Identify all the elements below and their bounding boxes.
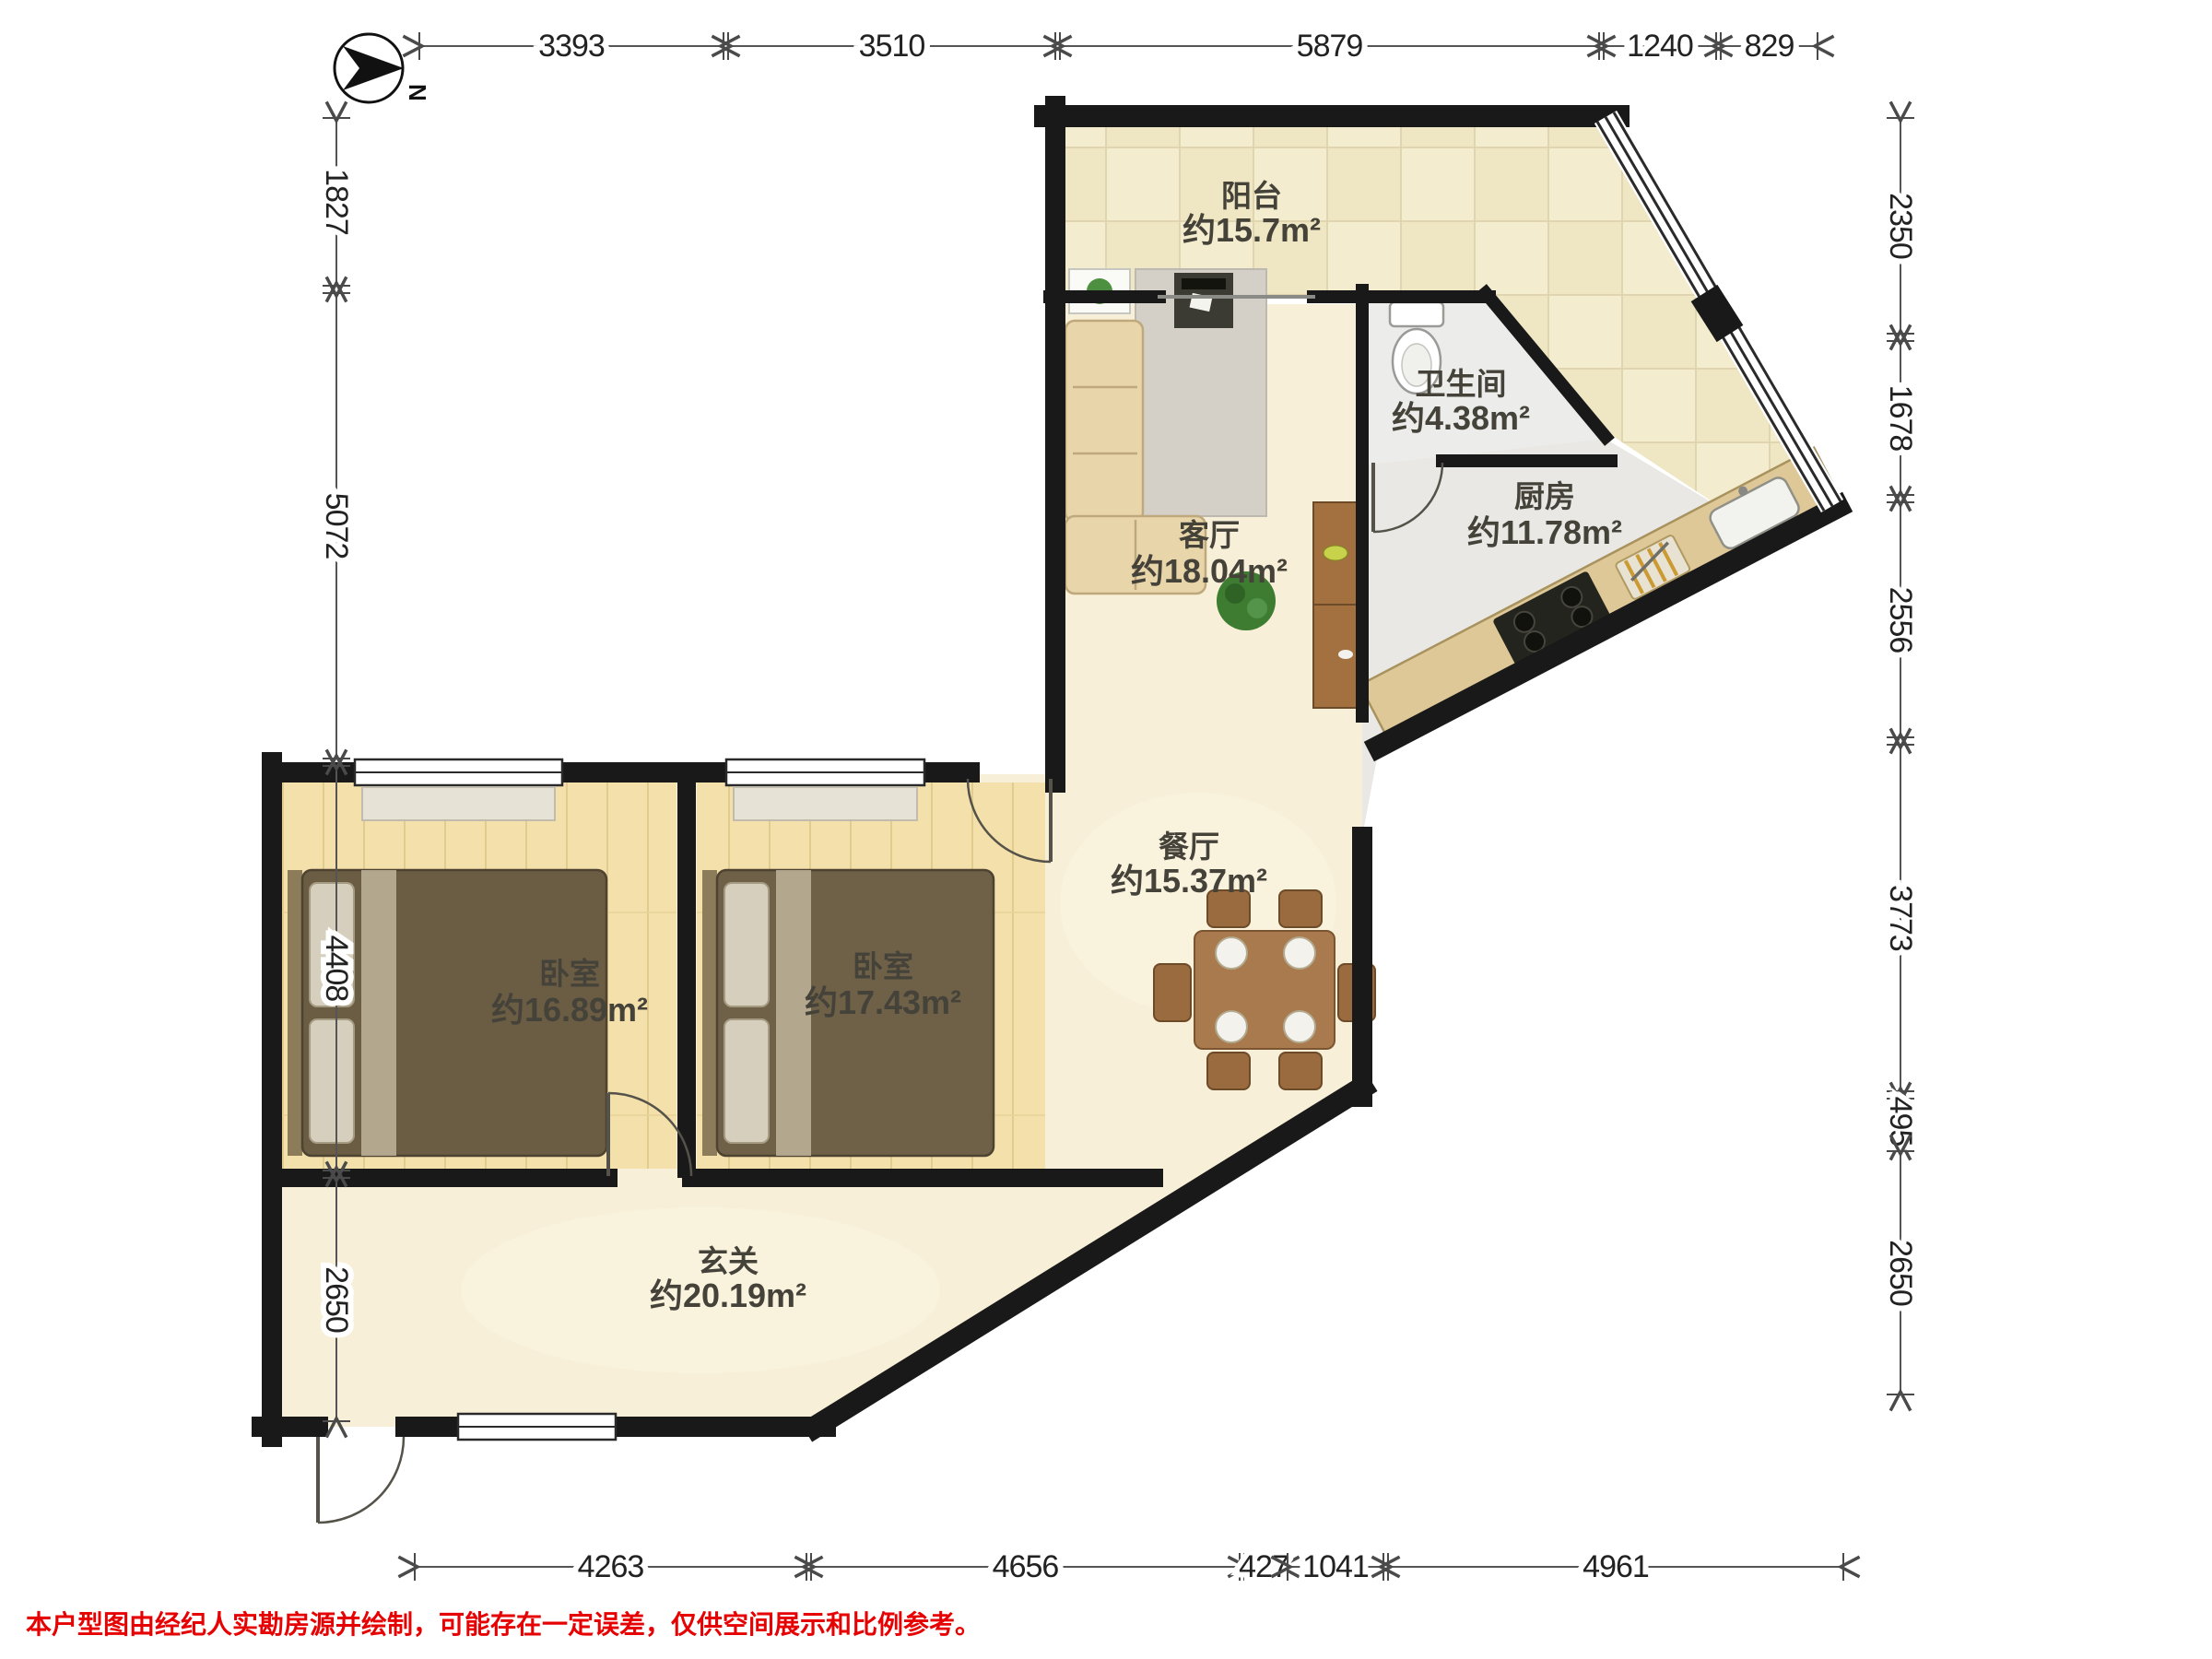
dim-top-4: 829 — [1721, 29, 1818, 64]
dim-right-5: 2650 — [1883, 1151, 1918, 1394]
bed-sheet-fold — [361, 870, 396, 1156]
compass-north-label: N — [404, 84, 431, 101]
dim-label: 4656 — [993, 1549, 1059, 1584]
dim-label: 1240 — [1627, 29, 1693, 64]
disclaimer-text: 本户型图由经纪人实勘房源并绘制，可能存在一定误差，仅供空间展示和比例参考。 — [26, 1609, 981, 1639]
dining-chair — [1154, 964, 1191, 1021]
cabinet-plant — [1324, 546, 1347, 560]
room-name-living: 客厅 — [1179, 518, 1240, 552]
room-name-bedroom-right: 卧室 — [853, 949, 913, 983]
dim-label: 495 — [1883, 1097, 1918, 1147]
room-area-bedroom-right: 约17.43m² — [805, 983, 961, 1021]
dim-right-0: 2350 — [1883, 118, 1918, 334]
dim-label: 2556 — [1883, 587, 1918, 653]
dim-right-4: 495 — [1883, 1097, 1918, 1147]
room-area-bathroom: 约4.38m² — [1392, 399, 1530, 437]
plate — [1284, 1011, 1315, 1042]
dim-top-3: 1240 — [1604, 29, 1716, 64]
floorplan-canvas: 阳台 约15.7m² 卫生间 约4.38m² 厨房 约11.78m² 客厅 约1… — [0, 0, 2212, 1659]
plate — [1284, 937, 1315, 969]
room-name-kitchen: 厨房 — [1514, 479, 1575, 513]
room-name-bathroom: 卫生间 — [1416, 367, 1507, 401]
dining-chair — [1279, 890, 1322, 927]
dim-label: 2350 — [1883, 193, 1918, 259]
bed-headboard — [702, 870, 717, 1156]
dim-bottom-0: 4263 — [415, 1549, 806, 1584]
room-name-bedroom-left: 卧室 — [539, 957, 600, 991]
room-area-hallway: 约20.19m² — [650, 1277, 806, 1314]
dim-label: 4263 — [578, 1549, 644, 1584]
dim-label: 829 — [1745, 29, 1794, 64]
dim-right-1: 1678 — [1883, 341, 1918, 495]
window-bedroom-left — [355, 759, 562, 820]
bed-headboard — [288, 870, 302, 1156]
dim-right-3: 3773 — [1883, 745, 1918, 1091]
dim-top-2: 5879 — [1060, 29, 1599, 64]
dining-chair — [1207, 1053, 1250, 1089]
dim-bottom-4: 4961 — [1388, 1549, 1843, 1584]
dim-label: 4408 — [319, 935, 354, 1002]
plate — [1216, 1011, 1247, 1042]
dim-bottom-3: 1041 — [1288, 1549, 1383, 1584]
dim-left-1: 5072 — [319, 293, 354, 759]
dim-right-2: 2556 — [1883, 502, 1918, 737]
window-bedroom-right — [726, 759, 924, 820]
dim-bottom-1: 4656 — [811, 1549, 1240, 1584]
dim-bottom-2: 427 — [1239, 1549, 1288, 1584]
room-name-dining: 餐厅 — [1159, 829, 1219, 864]
dim-label: 5879 — [1297, 29, 1363, 64]
entry-door — [318, 1437, 404, 1523]
bed-pillow — [724, 883, 769, 1006]
plant-leaf — [1247, 598, 1267, 618]
room-area-living: 约18.04m² — [1131, 552, 1288, 590]
dim-top-1: 3510 — [728, 29, 1055, 64]
floorplan-page: 阳台 约15.7m² 卫生间 约4.38m² 厨房 约11.78m² 客厅 约1… — [0, 0, 2212, 1659]
tv-screen — [1182, 278, 1226, 289]
dim-label: 427 — [1239, 1549, 1288, 1584]
dim-label: 3773 — [1883, 885, 1918, 951]
dim-label: 2650 — [1883, 1240, 1918, 1306]
room-area-balcony: 约15.7m² — [1182, 211, 1321, 249]
dim-label: 5072 — [319, 493, 354, 559]
cabinet-dish — [1338, 650, 1353, 659]
dim-left-0: 1827 — [319, 118, 354, 286]
room-name-hallway: 玄关 — [698, 1244, 759, 1278]
room-area-kitchen: 约11.78m² — [1467, 513, 1622, 551]
room-area-dining: 约15.37m² — [1111, 862, 1267, 900]
room-area-bedroom-left: 约16.89m² — [491, 991, 648, 1029]
dim-label: 1041 — [1302, 1549, 1369, 1584]
window-hallway — [458, 1414, 616, 1440]
room-name-balcony: 阳台 — [1221, 179, 1282, 213]
dim-label: 3393 — [538, 29, 605, 64]
north-compass: N — [335, 34, 431, 102]
dim-label: 1827 — [319, 169, 354, 235]
dim-label: 2650 — [319, 1266, 354, 1333]
sofa-body — [1065, 321, 1143, 522]
bed-pillow — [724, 1019, 769, 1143]
dim-top-0: 3393 — [419, 29, 724, 64]
dim-label: 4961 — [1583, 1549, 1649, 1584]
dim-label: 1678 — [1883, 385, 1918, 452]
plate — [1216, 937, 1247, 969]
dining-chair — [1279, 1053, 1322, 1089]
window-break-wall — [1704, 293, 1730, 334]
bed-pillow — [310, 1019, 354, 1143]
dim-label: 3510 — [859, 29, 925, 64]
